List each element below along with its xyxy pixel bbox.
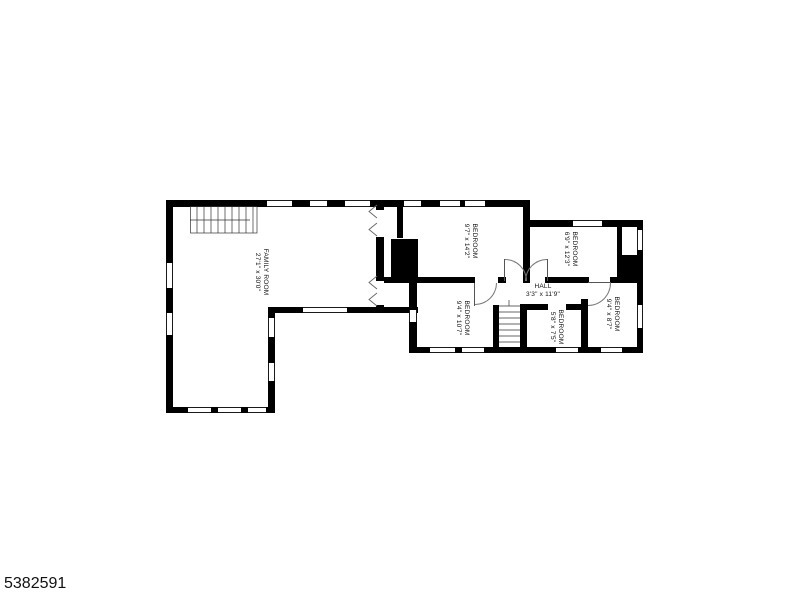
chimney-block-right (617, 255, 643, 278)
room-name: BEDROOM (556, 310, 564, 345)
door-leaf (474, 283, 475, 306)
stairs-and-symbols-layer (0, 0, 800, 600)
wall-hall-top-a (384, 277, 475, 283)
wall-stairwell-left (493, 305, 499, 353)
room-name: BEDROOM (570, 232, 578, 267)
room-name: FAMILY ROOM (261, 249, 269, 296)
window-symbol (268, 318, 275, 337)
room-name: BEDROOM (470, 224, 478, 259)
window-symbol (268, 363, 275, 381)
window-symbol (166, 263, 173, 288)
window-symbol (248, 407, 266, 413)
photo-id-label: 5382591 (4, 575, 66, 593)
window-symbol (462, 347, 484, 353)
room-label-family-room: FAMILY ROOM 27'1" x 30'0" (253, 249, 269, 296)
window-symbol (218, 407, 241, 413)
room-dims: 9'4" x 8'7" (604, 297, 612, 332)
room-label-bedroom-bottom-middle: BEDROOM 5'8" x 7'5" (548, 310, 564, 345)
room-label-hall: HALL 3'3" x 11'9" (526, 283, 560, 299)
room-name: BEDROOM (612, 297, 620, 332)
room-name: HALL (526, 283, 560, 291)
room-label-bedroom-top-right: BEDROOM 6'9" x 12'3" (562, 232, 578, 267)
wall-opening-post-top (376, 202, 384, 210)
window-symbol (267, 200, 292, 207)
wall-stairwell-right (520, 305, 527, 353)
room-dims: 6'9" x 12'3" (562, 232, 570, 267)
window-symbol (465, 200, 485, 207)
window-symbol (166, 313, 173, 335)
door-leaf (547, 259, 548, 281)
room-dims: 27'1" x 30'0" (253, 249, 261, 296)
window-symbol (601, 347, 622, 353)
room-dims: 9'7" x 14'2" (462, 224, 470, 259)
floor-plan: FAMILY ROOM 27'1" x 30'0" BEDROOM 9'7" x… (0, 0, 800, 600)
door-leaf (504, 259, 505, 281)
chimney-block (391, 239, 418, 277)
window-symbol (310, 200, 327, 207)
window-symbol (345, 200, 370, 207)
window-symbol (573, 220, 602, 227)
window-symbol (556, 347, 578, 353)
room-name: BEDROOM (462, 301, 470, 336)
wall-opening-post-bottom (376, 305, 384, 313)
wall-opening-post-middle (376, 237, 384, 281)
room-dims: 9'4" x 10'7" (454, 301, 462, 336)
window-symbol (409, 310, 417, 322)
room-dims: 5'8" x 7'5" (548, 310, 556, 345)
wall-closet-right (617, 227, 622, 257)
room-label-bedroom-bottom-right: BEDROOM 9'4" x 8'7" (604, 297, 620, 332)
window-symbol (430, 347, 455, 353)
wall-closet-left (397, 205, 403, 238)
wall-hall-bottom-b (566, 304, 587, 310)
window-symbol (637, 230, 643, 250)
room-label-bedroom-bottom-left: BEDROOM 9'4" x 10'7" (454, 301, 470, 336)
window-symbol (188, 407, 211, 413)
window-symbol (303, 307, 347, 313)
wall-exterior-left (166, 200, 173, 413)
staircase-main (190, 207, 257, 234)
window-symbol (404, 200, 421, 207)
room-dims: 3'3" x 11'9" (526, 291, 560, 299)
room-label-bedroom-top-middle: BEDROOM 9'7" x 14'2" (462, 224, 478, 259)
door-arc-hall-west (475, 283, 497, 305)
door-leaf (588, 282, 611, 283)
window-symbol (440, 200, 460, 207)
staircase-hall (499, 300, 520, 342)
window-symbol (637, 305, 643, 328)
